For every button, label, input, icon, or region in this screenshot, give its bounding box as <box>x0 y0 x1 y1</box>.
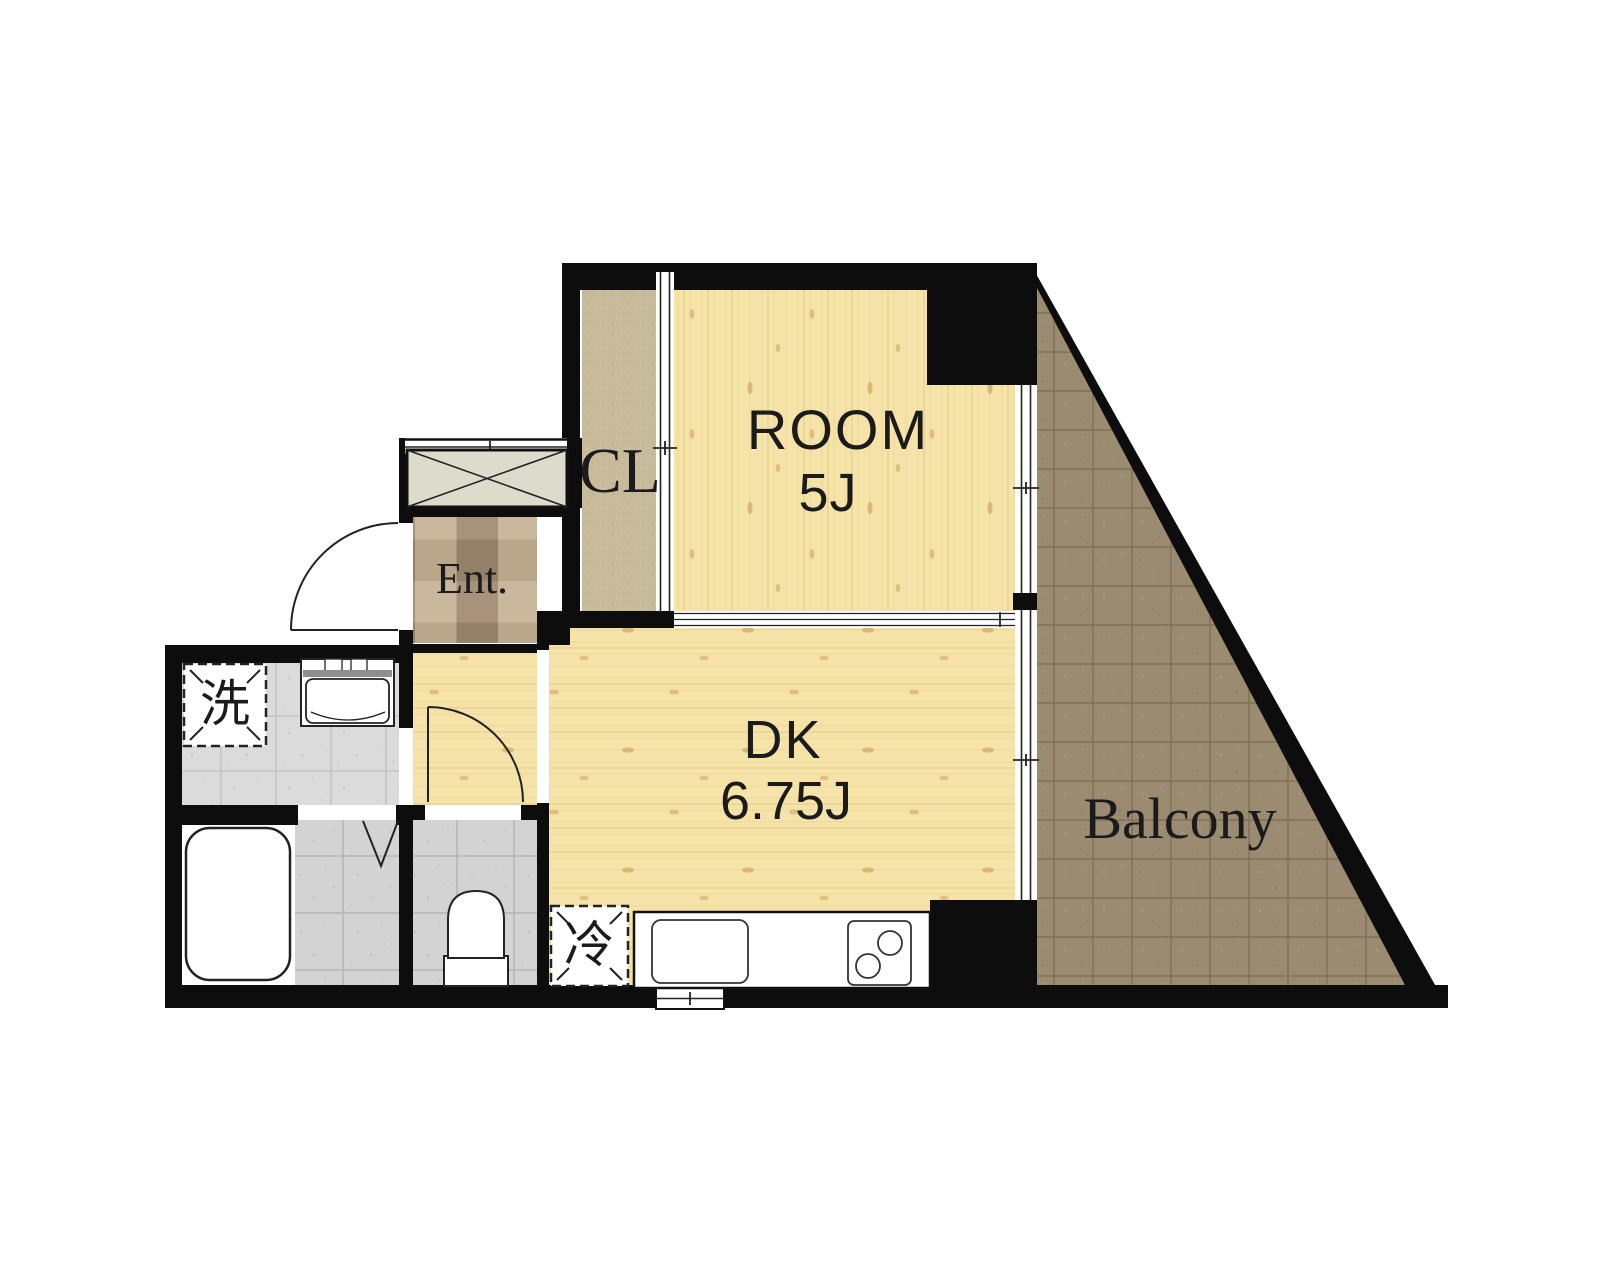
washroom-right-wall <box>399 657 413 728</box>
shoe-cabinet <box>407 450 567 507</box>
bathtub <box>186 828 290 980</box>
room-dk-sliding-door <box>674 611 1015 628</box>
toilet <box>444 891 508 986</box>
room-size-label: 5J <box>798 466 857 520</box>
kitchen-sink <box>652 920 748 983</box>
dk-size-label: 6.75J <box>720 774 852 828</box>
toilet-top-wall-left <box>413 805 425 820</box>
washroom-bath-wall <box>165 805 298 825</box>
floor-plan: ROOM 5J DK 6.75J CL Ent. Balcony 洗 冷 <box>0 0 1600 1280</box>
window-divider-wall <box>1013 593 1037 610</box>
hallway-floor <box>413 652 537 805</box>
vanity-sink <box>301 659 394 726</box>
dk-left-wall-lower <box>537 803 549 985</box>
entrance-door <box>291 523 398 630</box>
dk-label: DK <box>743 713 822 767</box>
room-corner-wall <box>927 263 1037 385</box>
dk-corner-wall <box>930 900 1037 985</box>
room-balcony-window <box>1013 385 1039 595</box>
bathroom-floor <box>295 820 399 985</box>
dk-balcony-window <box>1013 610 1039 900</box>
entrance-label: Ent. <box>436 557 508 601</box>
floors <box>182 290 1015 985</box>
closet-label: CL <box>579 439 661 503</box>
washing-machine-label: 洗 <box>200 679 250 729</box>
left-outer-wall <box>165 645 182 1008</box>
floor-plan-canvas <box>0 0 1600 1280</box>
room-label: ROOM <box>747 402 929 458</box>
refrigerator-label: 冷 <box>564 920 614 970</box>
entrance-step <box>413 644 537 653</box>
kitchen-vent-window <box>656 988 724 1009</box>
toilet-left-wall <box>399 805 413 1008</box>
dk-left-wall-upper <box>537 628 549 650</box>
balcony-label: Balcony <box>1083 790 1276 848</box>
stove <box>848 921 911 985</box>
